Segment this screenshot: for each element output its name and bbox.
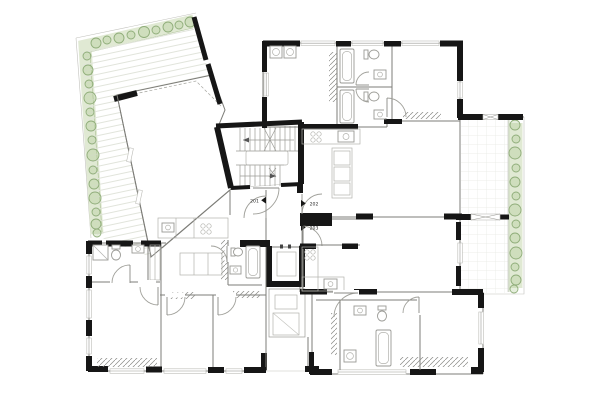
bathroom-202b [340, 89, 386, 123]
unit-201-label: 201 [250, 198, 259, 204]
kitchen-201 [158, 218, 228, 275]
toilet-icon [378, 311, 387, 321]
terrace-top-left [76, 13, 231, 257]
unit-202-label: 202 [310, 201, 319, 207]
hatch-wall-203 [331, 313, 337, 355]
terrace-right [456, 114, 524, 294]
wardrobe-201 [97, 358, 157, 367]
bathroom-203-door-arc [403, 297, 419, 313]
bathroom-201a [93, 245, 144, 260]
bathroom-203 [344, 306, 391, 366]
wardrobe-202 [403, 112, 441, 119]
wardrobe-203 [400, 357, 468, 367]
toilet-icon [369, 92, 379, 101]
toilet-icon [112, 250, 121, 260]
washer-dryer [270, 46, 296, 58]
wall-stair-east [298, 122, 304, 184]
bathroom-201b [230, 246, 260, 278]
wall-hall-east [300, 213, 332, 226]
toilet-icon [234, 248, 243, 256]
floor-plan-svg: 201 202 203 [0, 0, 600, 400]
unit-203-label: 203 [310, 225, 319, 231]
entry-arrow-201 [261, 197, 266, 204]
hatch-wall-202 [329, 52, 337, 102]
kitchen-203 [302, 247, 344, 291]
toilet-icon [369, 50, 379, 59]
unit-203 [300, 222, 484, 375]
bathroom-202a [340, 49, 386, 85]
elevator-car [277, 252, 296, 276]
kitchen-202 [302, 129, 360, 198]
unit-201 [86, 218, 266, 373]
elevator [266, 245, 305, 288]
service-shaft [269, 289, 305, 337]
dining-table [180, 253, 222, 275]
floor-plan: 201 202 203 [0, 0, 600, 400]
terrace-tiles [461, 119, 508, 293]
stair-block [216, 122, 304, 214]
